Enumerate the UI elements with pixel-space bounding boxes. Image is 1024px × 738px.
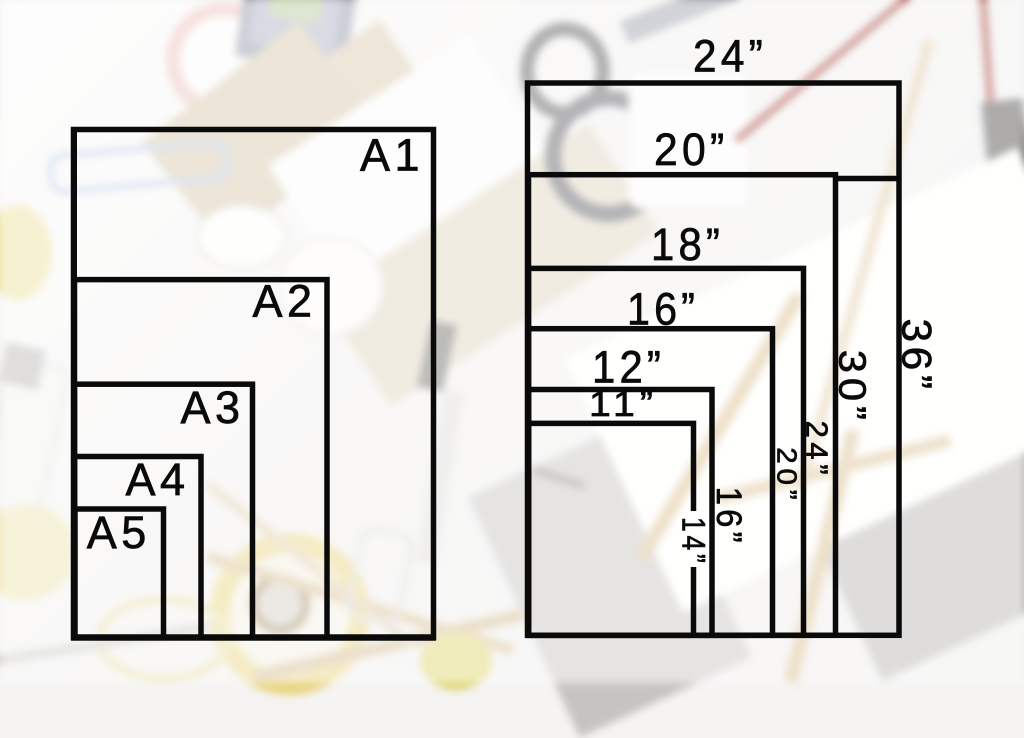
- svg-text:36”: 36”: [894, 319, 941, 394]
- svg-text:30”: 30”: [831, 350, 873, 425]
- svg-text:A3: A3: [181, 382, 245, 433]
- svg-text:20”: 20”: [654, 124, 729, 175]
- svg-text:14”: 14”: [676, 517, 712, 567]
- svg-text:16”: 16”: [627, 284, 699, 335]
- svg-text:11”: 11”: [589, 385, 658, 424]
- svg-text:18”: 18”: [651, 219, 724, 270]
- svg-text:A5: A5: [87, 507, 151, 558]
- svg-text:A2: A2: [253, 275, 317, 326]
- svg-text:20”: 20”: [772, 447, 803, 504]
- svg-text:24”: 24”: [800, 421, 834, 480]
- svg-text:A4: A4: [126, 454, 190, 505]
- svg-text:24”: 24”: [693, 31, 767, 82]
- svg-text:A1: A1: [360, 130, 424, 181]
- svg-text:16”: 16”: [709, 487, 748, 547]
